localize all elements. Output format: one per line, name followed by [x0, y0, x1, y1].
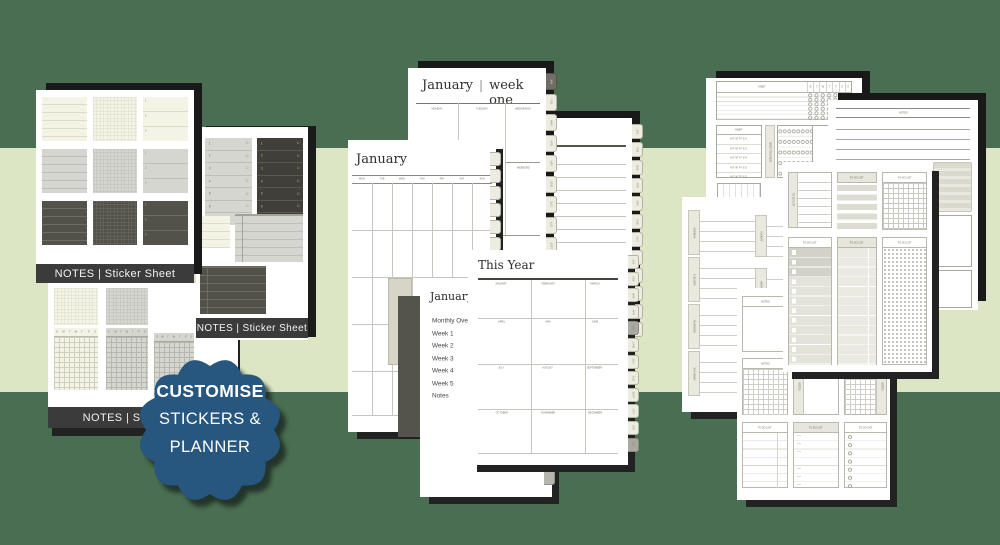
circle-icon: ○ [296, 204, 299, 210]
day-label: SATURDAY [693, 367, 696, 380]
todo-table-box: TO DO LIST [742, 422, 788, 488]
month-tab: JULY [628, 355, 639, 369]
weekend-label: WEEKEND [517, 167, 530, 170]
month-tab: JAN [632, 124, 643, 139]
month-cell-label: NOVEMBER [541, 412, 555, 415]
month-tab: MAY [546, 155, 557, 172]
circle-icon: ○ [245, 154, 248, 160]
circle-icon: ○ [245, 179, 248, 185]
circle-icon: ○ [245, 204, 248, 210]
month-tab: AUG [628, 371, 639, 385]
habit-list: HABIT M T W T F S S M T W T F S S M T W … [716, 125, 762, 178]
month-tab: MAR [628, 288, 639, 302]
month-tab: NOV [628, 421, 639, 435]
month-tab: FEB [546, 94, 557, 111]
habit-label: HABIT [758, 86, 765, 89]
habit-days-row: M T W T F S S [731, 166, 747, 169]
month-cell-label: MAY [545, 321, 550, 324]
mini-tab [490, 237, 501, 251]
mini-tab [490, 186, 501, 200]
month-tab: JULY [632, 232, 643, 247]
month-tab: JUNE [628, 338, 639, 352]
month-tab: MAR [546, 114, 557, 131]
sticker-numbered-note: 123 [143, 201, 188, 245]
circle-icon: ○ [296, 191, 299, 197]
month-tab-strip: JANFEBMARAPRMAYJUNEJULYAUGSEPTOCTNOVDEC [628, 255, 639, 454]
sticker-lined-note [42, 97, 87, 141]
page-title: This Year [478, 258, 534, 272]
notes-label: NOTES [899, 112, 908, 115]
month-cell-label: JANUARY [495, 283, 507, 286]
month-tab: AUG [546, 217, 557, 234]
year-overview-page: This Year JANUARYFEBRUARYMARCHAPRILMAYJU… [468, 250, 628, 465]
todo-checkbox-box: TO DO LIST [793, 422, 839, 488]
todo-bars: TO DO LIST [837, 172, 877, 228]
month-cell-label: JUNE [591, 321, 598, 324]
month-tab: APR [632, 178, 643, 193]
sticker-ruled-paper [235, 214, 303, 262]
sticker-grid-note [93, 149, 138, 193]
sticker-week-calendar: SMTWTFS [154, 333, 194, 390]
todo-label: TO DO LIST [809, 426, 823, 429]
title-separator: | [479, 78, 483, 92]
month-cell-label: OCTOBER [495, 412, 507, 415]
month-tab: FEB [628, 272, 639, 286]
todo-side-lined: TO DO LIST [788, 172, 832, 228]
bars-box [933, 162, 972, 212]
day-column-header: WEDNESDAY [515, 108, 531, 111]
month-cell-label: AUGUST [543, 367, 554, 370]
todo-label: TO DO LIST [758, 426, 772, 429]
sticker-week-calendar: SMTWTFS [54, 328, 98, 390]
mini-tab [490, 169, 501, 183]
sticker-checklist: 1○2○3○4○5○6○7○ [205, 138, 252, 225]
mini-tab-strip [490, 152, 501, 254]
todo-label: TO DO LIST [898, 241, 912, 244]
circle-icon: ○ [245, 141, 248, 147]
todo-label: TO DO LIST [792, 193, 795, 207]
todo-dotted: TO DO LIST [882, 237, 927, 365]
notes-label: NOTES [761, 362, 770, 365]
todo-label: TO DO LIST [850, 176, 864, 179]
month-tab: FEB [632, 142, 643, 157]
sticker-grid-note [54, 288, 98, 325]
month-tab: JAN [546, 73, 557, 90]
sheet-title-bar: NOTES | Sticker Sheet [36, 264, 194, 283]
habit-tracker-label: HABIT TRACKER [769, 141, 772, 161]
grid-box [933, 215, 972, 267]
sticker-numbered-note: 123 [143, 149, 188, 193]
month-cell-label: JULY [498, 367, 504, 370]
todo-label: TO DO LIST [850, 241, 864, 244]
page-title: January [356, 152, 407, 167]
month-tab: APR [628, 305, 639, 319]
sticker-numbered-note: 123 [143, 97, 188, 141]
month-tab: JULY [546, 196, 557, 213]
day-column-header: TUESDAY [476, 108, 488, 111]
todo-checkbox-list: TO DO LIST [788, 237, 832, 365]
circle-icon: ○ [296, 179, 299, 185]
todo-table: TO DO LIST [837, 237, 877, 365]
product-image: SMTWTFS SMTWTFS SMTWTFS NOTES | Sticker … [0, 0, 1000, 545]
todo-circle-box: TO DO LIST [844, 422, 887, 488]
day-label-strip: THURSDAY [688, 304, 700, 349]
day-label: TUESDAY [693, 274, 696, 286]
habit-tracker-strip: HABIT TRACKER [765, 125, 775, 178]
sheet-title: NOTES | Sticker Sheet [83, 412, 204, 424]
day-label-strip: MONDAY [688, 210, 700, 255]
habit-days-row: M T W T F S S [731, 147, 747, 150]
day-label-strip: SATURDAY [688, 351, 700, 396]
notes-label: NOTES [797, 382, 800, 391]
day-label: THURSDAY [693, 320, 696, 334]
plain-box [933, 270, 972, 308]
sticker-lined-note [42, 149, 87, 193]
notes-label: NOTES [880, 382, 883, 391]
todo-label: TO DO LIST [803, 241, 817, 244]
month-tab: DEC [628, 438, 639, 452]
circle-icon: ○ [296, 141, 299, 147]
habit-days-row: M T W T F S S [731, 176, 747, 179]
sticker-checklist-dark: 1○2○3○4○5○6○7○ [257, 138, 303, 225]
sticker-sheet-checklists: 1○2○3○4○5○6○7○ 1○2○3○4○5○6○7○ NOTES | St… [196, 127, 308, 340]
circle-icon: ○ [245, 191, 248, 197]
day-label-strip: TUESDAY [688, 257, 700, 302]
sticker-sheet-notes: 123 123 123 NOTES | Sticker Sheet [36, 90, 194, 283]
day-column-header: MONDAY [432, 108, 443, 111]
sheet-title: NOTES | Sticker Sheet [197, 323, 307, 334]
sticker-lined-note [200, 216, 230, 248]
day-label: MONDAY [693, 227, 696, 238]
month-tab: JAN [628, 255, 639, 269]
sticker-week-calendar: SMTWTFS [106, 328, 148, 390]
page-title: January [430, 290, 473, 303]
month-tab: APR [546, 135, 557, 152]
month-tab: MAR [632, 160, 643, 175]
circle-icon: ○ [296, 154, 299, 160]
month-tab: MAY [628, 321, 639, 335]
habit-label: HABIT [735, 129, 742, 132]
mini-tab [490, 220, 501, 234]
month-tab: JUNE [632, 214, 643, 229]
month-cell-label: SEPTEMBER [587, 367, 603, 370]
badge-line3: PLANNER [170, 438, 251, 456]
month-cell-label: APRIL [498, 321, 505, 324]
sticker-grid-note [93, 97, 138, 141]
sticker-grid-note [106, 288, 148, 325]
habit-days-row: M T W T F S S [731, 138, 747, 141]
circle-icon: ○ [296, 166, 299, 172]
todo-label: TO DO LIST [859, 426, 873, 429]
day-label: SUNDAY [760, 231, 763, 241]
day-label-strip: SUNDAY [755, 215, 767, 257]
page-title-month: January [422, 78, 473, 93]
habit-days-row: M T W T F S S [731, 157, 747, 160]
month-cell-label: MARCH [590, 283, 599, 286]
todo-modules-page: TO DO LIST TO DO LIST TO DO LIST TO DO L… [783, 162, 932, 372]
sticker-grid-note [93, 201, 138, 245]
sheet-title-bar: NOTES | Sticker Sheet [196, 318, 308, 338]
sheet-title-bar: NOTES | Sticker Sheet [48, 407, 238, 428]
todo-label: TO DO LIST [898, 176, 912, 179]
mini-tab [490, 203, 501, 217]
todo-grid: TO DO LIST [882, 172, 927, 230]
mini-tab [490, 152, 501, 166]
notes-grid-box: NOTES [742, 358, 788, 415]
notes-label: NOTES [761, 300, 770, 303]
sheet-title: NOTES | Sticker Sheet [55, 268, 176, 280]
notes-box: NOTES [742, 296, 788, 352]
circle-icon: ○ [245, 166, 248, 172]
mini-tab [544, 468, 555, 485]
month-tab: MAY [632, 196, 643, 211]
month-tab: JUNE [546, 176, 557, 193]
month-cell-label: FEBRUARY [541, 283, 555, 286]
month-tab: SEPT [628, 388, 639, 402]
bookmark-tab-dark [398, 296, 420, 437]
sticker-lined-note [42, 201, 87, 245]
month-tab: OCT [628, 404, 639, 418]
month-cell-label: DECEMBER [588, 412, 602, 415]
sticker-ruled-paper-dark [200, 266, 266, 314]
